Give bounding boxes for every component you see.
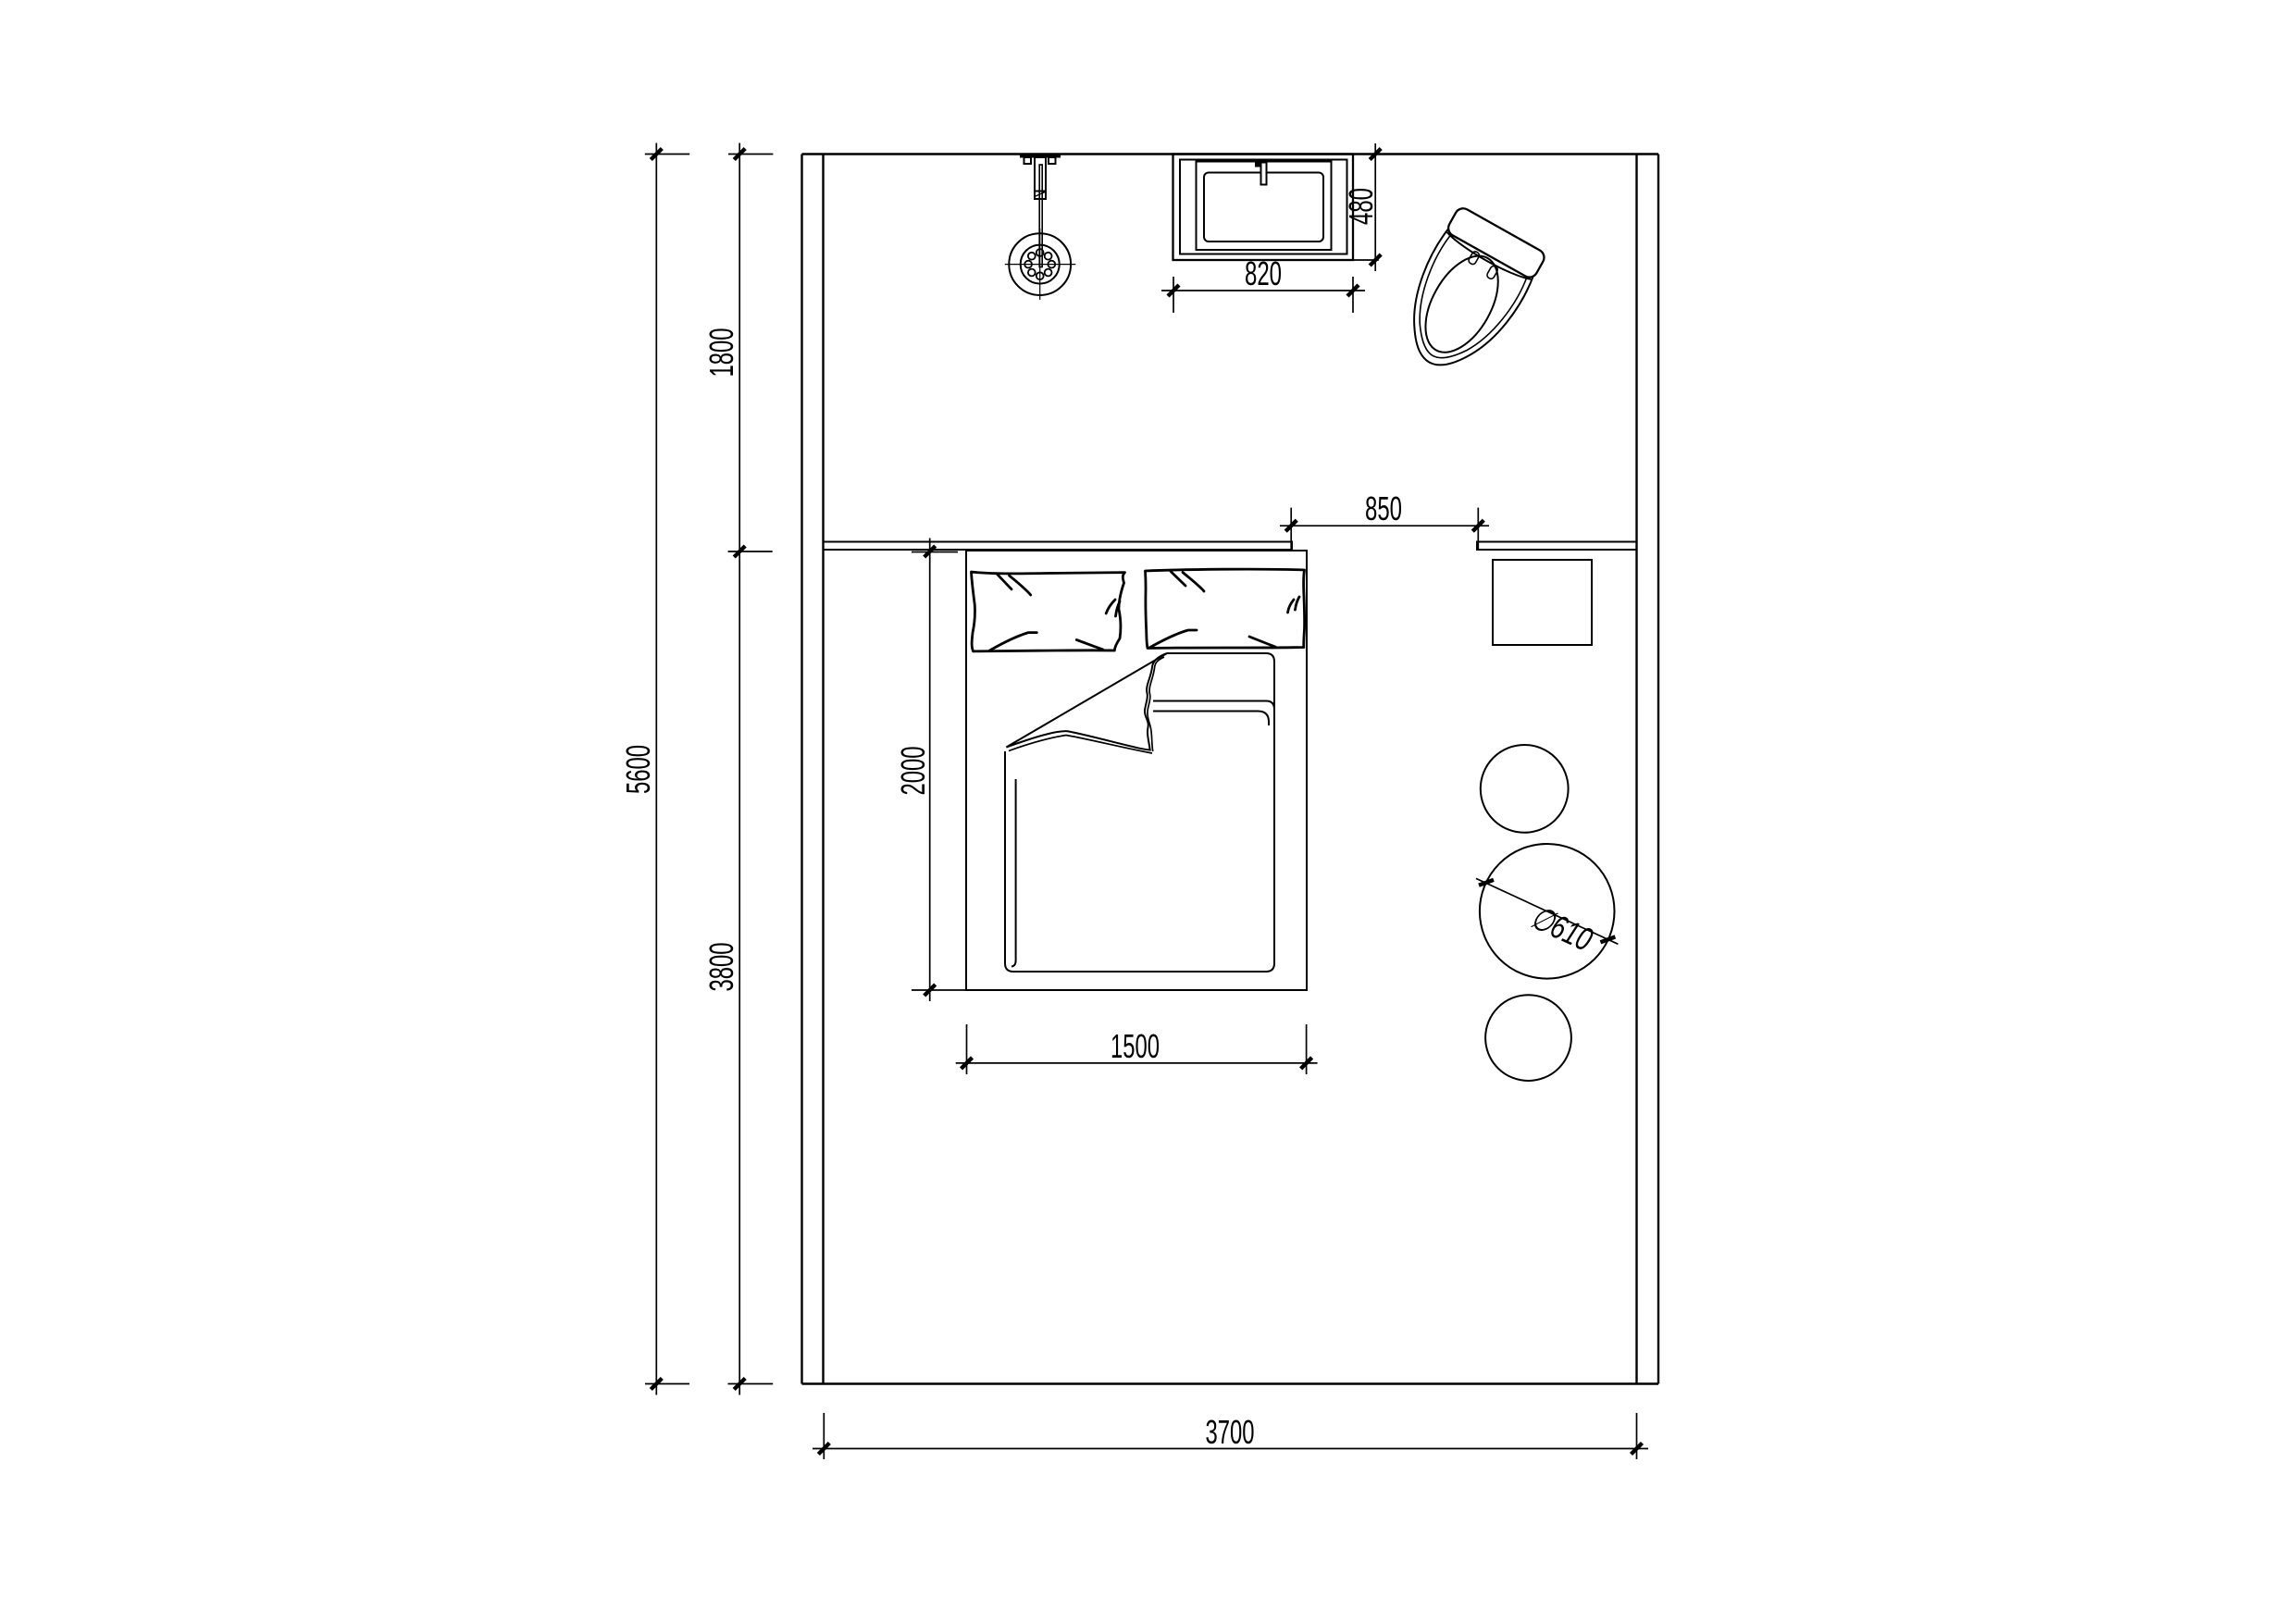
svg-text:1800: 1800: [702, 328, 740, 378]
svg-text:3800: 3800: [702, 943, 740, 992]
svg-text:2000: 2000: [894, 747, 932, 796]
svg-text:850: 850: [1365, 489, 1402, 527]
svg-text:820: 820: [1245, 254, 1282, 292]
svg-text:480: 480: [1342, 188, 1380, 225]
svg-text:5600: 5600: [619, 745, 657, 794]
svg-text:3700: 3700: [1206, 1413, 1255, 1451]
svg-text:1500: 1500: [1111, 1027, 1160, 1065]
